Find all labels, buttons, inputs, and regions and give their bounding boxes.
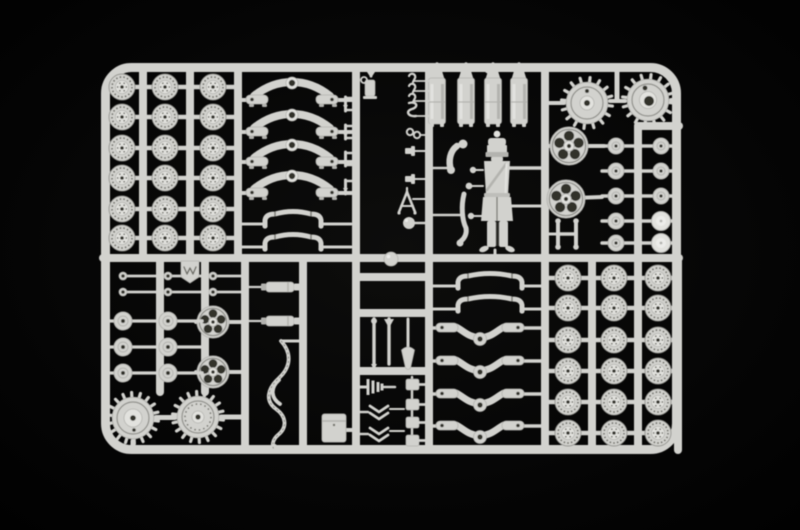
flat-disc <box>114 338 132 356</box>
sphere-part <box>384 252 398 266</box>
road-wheel <box>152 104 178 130</box>
road-wheel <box>601 295 627 321</box>
flat-disc <box>159 364 177 382</box>
road-wheel <box>601 420 627 446</box>
road-wheel <box>555 295 581 321</box>
flat-disc <box>114 364 132 382</box>
spoked-wheel <box>550 127 588 165</box>
road-wheel <box>200 74 226 100</box>
road-wheel <box>152 135 178 161</box>
road-wheel <box>601 358 627 384</box>
road-wheel <box>109 165 135 191</box>
road-wheel <box>645 420 671 446</box>
road-wheel <box>601 265 627 291</box>
road-wheel <box>200 165 226 191</box>
road-wheel <box>555 265 581 291</box>
road-wheel <box>601 327 627 353</box>
road-wheel <box>152 165 178 191</box>
road-wheel <box>645 327 671 353</box>
road-wheel <box>152 225 178 251</box>
road-wheel <box>200 135 226 161</box>
flat-disc <box>159 338 177 356</box>
road-wheel <box>109 104 135 130</box>
road-wheel <box>200 104 226 130</box>
road-wheel <box>601 389 627 415</box>
flat-disc <box>159 312 177 330</box>
road-wheel <box>152 74 178 100</box>
road-wheel <box>555 327 581 353</box>
road-wheel <box>555 420 581 446</box>
road-wheel <box>200 196 226 222</box>
road-wheel <box>645 295 671 321</box>
road-wheel <box>645 358 671 384</box>
road-wheel <box>645 265 671 291</box>
road-wheel <box>109 225 135 251</box>
road-wheel <box>555 358 581 384</box>
road-wheel <box>109 196 135 222</box>
flat-disc <box>114 312 132 330</box>
road-wheel <box>200 225 226 251</box>
road-wheel <box>645 389 671 415</box>
model-kit-sprue-photo <box>0 0 800 530</box>
road-wheel <box>555 389 581 415</box>
road-wheel <box>109 135 135 161</box>
spoked-wheel <box>547 180 585 218</box>
photo-stage <box>0 0 800 530</box>
flat-disc-rows <box>104 312 202 382</box>
road-wheel <box>152 196 178 222</box>
road-wheel <box>109 74 135 100</box>
